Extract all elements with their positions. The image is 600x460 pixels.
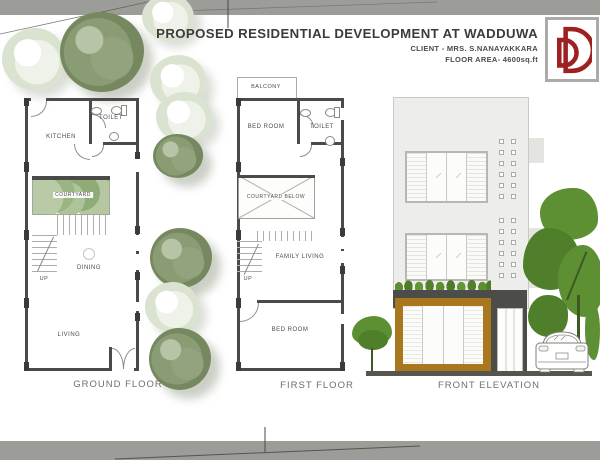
window-slot (341, 108, 344, 120)
column-marker (24, 362, 29, 371)
column-marker (236, 230, 241, 240)
vent-block (499, 150, 504, 155)
wall-segment (103, 142, 139, 145)
vent-block (499, 262, 504, 267)
entry-door-arc (31, 101, 47, 117)
window-pane (427, 235, 447, 279)
wall-segment (257, 300, 344, 303)
vent-block (499, 218, 504, 223)
toilet-tank (334, 107, 340, 118)
first-floor-plan: BALCONY BED ROOM TOILET (237, 98, 344, 371)
vent-block (499, 240, 504, 245)
vent-block (499, 183, 504, 188)
vent-block (499, 251, 504, 256)
vent-block (499, 273, 504, 278)
toilet-fixture (109, 132, 119, 141)
window-pane (427, 153, 447, 201)
elevation-window-upper (405, 151, 488, 203)
vent-block (499, 194, 504, 199)
courtyard-below-label: COURTYARD BELOW (245, 194, 307, 200)
wall-sliver (523, 300, 527, 372)
wall-segment (238, 175, 315, 178)
vent-block (511, 262, 516, 267)
wall-segment (237, 98, 344, 101)
tree-watercolor (2, 28, 66, 90)
window-pane (407, 235, 427, 279)
vent-grid-lower (499, 218, 516, 278)
vent-block (511, 218, 516, 223)
column-marker (24, 230, 29, 240)
window-slot (341, 314, 344, 324)
column-marker (135, 226, 140, 234)
bedroom-door-arc (240, 303, 259, 322)
living-label: LIVING (58, 332, 81, 338)
window-pane (444, 306, 464, 364)
hall-door-arc (74, 144, 90, 160)
window-pane (407, 153, 427, 201)
column-marker (340, 158, 345, 166)
window-slot (136, 302, 139, 311)
column-marker (236, 162, 241, 172)
sink-fixture (91, 107, 102, 115)
column-marker (340, 228, 345, 236)
column-marker (236, 362, 241, 371)
tree-watercolor (145, 282, 199, 332)
wall-segment (46, 98, 139, 101)
front-elevation-caption: FRONT ELEVATION (438, 380, 540, 391)
first-floor-caption: FIRST FLOOR (280, 380, 354, 391)
column-marker (340, 266, 345, 274)
stair-run (57, 215, 108, 235)
vent-block (511, 183, 516, 188)
architect-logo (545, 17, 599, 82)
column-marker (24, 162, 29, 172)
ground-floor-caption: GROUND FLOOR (73, 379, 163, 390)
stair-run (237, 241, 262, 275)
window-pane (464, 306, 483, 364)
vent-block (511, 194, 516, 199)
bedroom-label: BED ROOM (272, 327, 309, 333)
tree-watercolor (153, 134, 203, 178)
wall-segment (237, 368, 344, 371)
dining-label: DINING (77, 265, 101, 271)
column-marker (340, 362, 345, 371)
up-label: UP (40, 276, 49, 282)
vent-block (511, 273, 516, 278)
vent-block (499, 172, 504, 177)
up-label: UP (244, 276, 253, 282)
window-pane (447, 235, 467, 279)
column-marker (135, 313, 140, 321)
tree-elevation-small (358, 330, 388, 350)
window-pane (467, 153, 486, 201)
column-marker (236, 98, 241, 106)
column-marker (24, 98, 29, 106)
window-slot (341, 237, 344, 249)
car-rear-icon (534, 329, 590, 373)
family-living-label: FAMILY LIVING (276, 254, 325, 260)
toilet-label: TOILET (310, 124, 334, 130)
door-arc (92, 145, 104, 157)
window-pane (403, 306, 423, 364)
window-pane (467, 235, 486, 279)
shower-fixture (325, 136, 335, 146)
title-block: PROPOSED RESIDENTIAL DEVELOPMENT AT WADD… (156, 26, 538, 64)
vent-block (511, 161, 516, 166)
stair-run (257, 231, 315, 241)
vent-block (511, 229, 516, 234)
tree-trunk (371, 348, 373, 372)
balcony-label: BALCONY (251, 84, 281, 90)
courtyard-label: COURTYARD (53, 192, 93, 198)
tree-watercolor (60, 12, 144, 92)
door-arc (300, 145, 312, 157)
vent-block (511, 251, 516, 256)
project-title: PROPOSED RESIDENTIAL DEVELOPMENT AT WADD… (156, 26, 538, 41)
vent-block (511, 139, 516, 144)
floor-area-line: FLOOR AREA- 4600sq.ft (156, 55, 538, 64)
courtyard-planting: COURTYARD (32, 176, 110, 215)
column-marker (135, 272, 140, 280)
bedroom-label: BED ROOM (248, 124, 285, 130)
table-circle (83, 248, 95, 260)
entrance-door (497, 308, 523, 372)
elevation-window-ground-brown-frame (395, 298, 491, 372)
client-line: CLIENT - MRS. S.NANAYAKKARA (156, 44, 538, 53)
column-marker (24, 298, 29, 308)
window-slot (341, 251, 344, 263)
window-slot (136, 235, 139, 251)
window-pane (447, 153, 467, 201)
vent-block (499, 229, 504, 234)
vent-block (511, 240, 516, 245)
ground-floor-plan: COURTYARD UP KITCHEN TOILET DINING LIVIN… (25, 98, 139, 371)
vent-block (511, 150, 516, 155)
double-door-arc (123, 348, 135, 369)
wall-segment (25, 368, 112, 371)
vent-block (499, 161, 504, 166)
tree-watercolor (150, 228, 212, 288)
window-slot (136, 254, 139, 270)
sink-fixture (300, 109, 311, 117)
side-block (527, 138, 544, 163)
vent-block (499, 139, 504, 144)
toilet-label: TOILET (99, 115, 123, 121)
elevation-window-middle (405, 233, 488, 281)
kitchen-label: KITCHEN (46, 134, 76, 140)
double-d-monogram-icon (552, 24, 592, 76)
vent-grid-upper (499, 139, 516, 199)
window-slot (136, 159, 139, 172)
wall-segment (32, 176, 110, 180)
courtyard-void: COURTYARD BELOW (238, 175, 315, 219)
vent-block (511, 172, 516, 177)
window-pane (423, 306, 443, 364)
column-marker (135, 152, 140, 159)
presentation-board: COURTYARD UP KITCHEN TOILET DINING LIVIN… (0, 0, 600, 460)
